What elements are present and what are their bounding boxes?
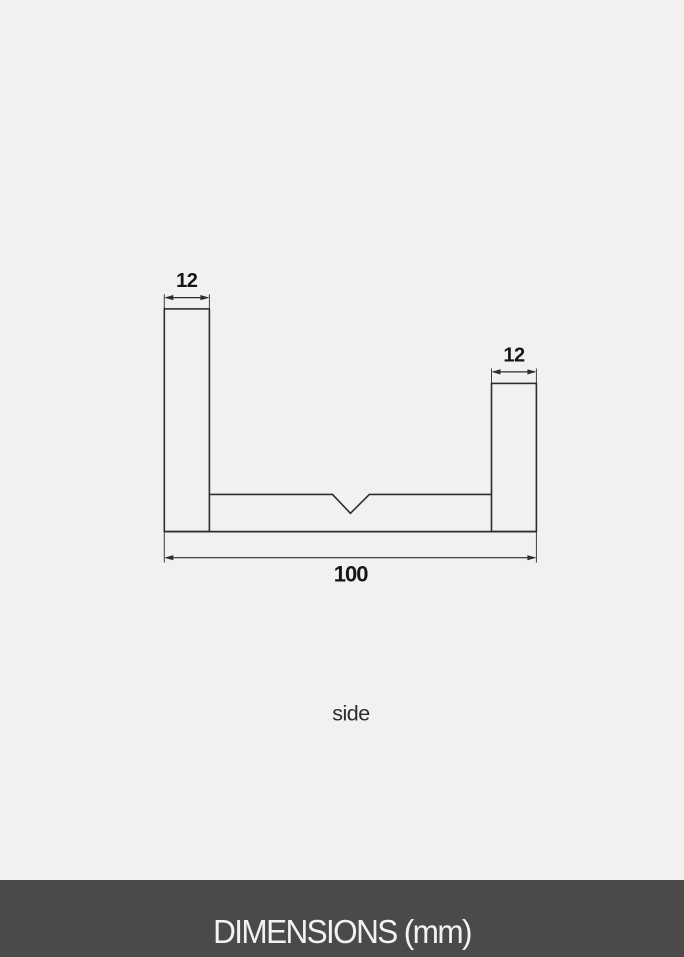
svg-text:12: 12 (176, 270, 198, 292)
svg-text:100: 100 (334, 561, 368, 586)
svg-text:12: 12 (503, 344, 525, 366)
svg-text:side: side (332, 701, 369, 725)
